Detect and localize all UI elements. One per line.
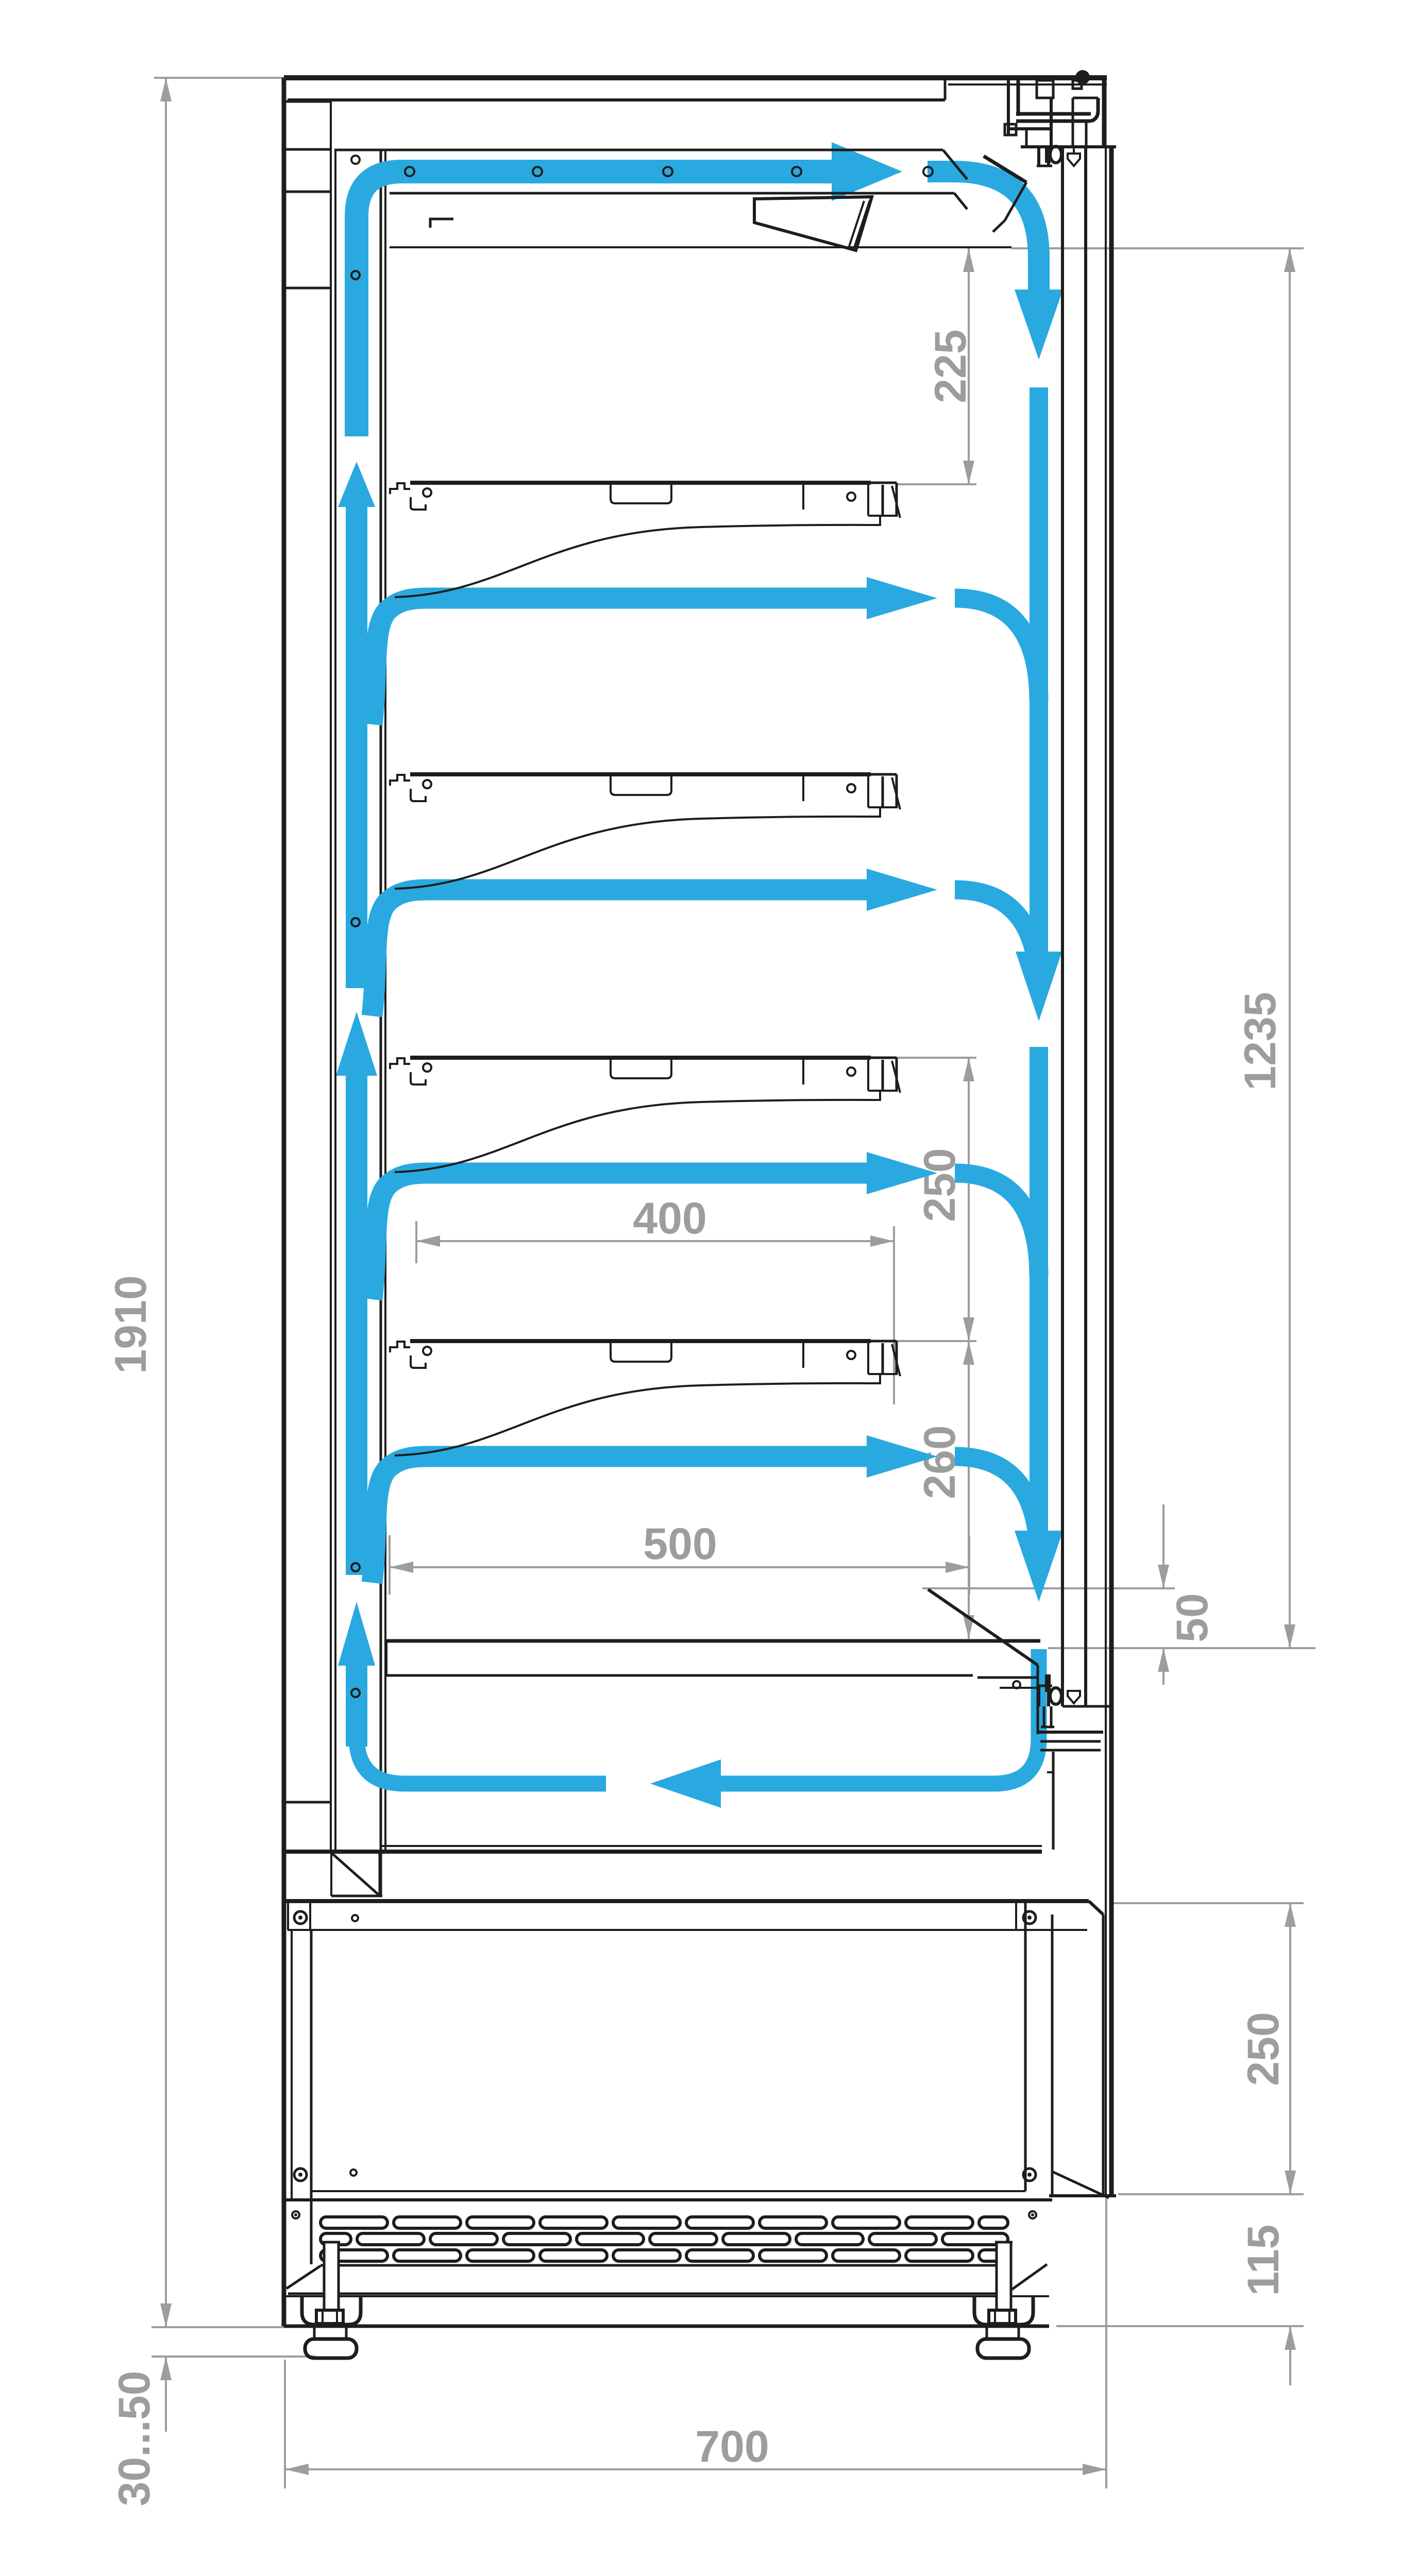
svg-text:50: 50	[1168, 1593, 1217, 1642]
svg-text:1235: 1235	[1236, 992, 1285, 1090]
svg-text:400: 400	[633, 1194, 707, 1243]
svg-text:250: 250	[1239, 2012, 1288, 2086]
svg-text:250: 250	[915, 1148, 965, 1222]
svg-text:700: 700	[695, 2422, 769, 2471]
svg-text:115: 115	[1239, 2225, 1288, 2296]
svg-text:500: 500	[643, 1519, 717, 1569]
svg-text:1910: 1910	[106, 1275, 156, 1374]
svg-text:225: 225	[926, 329, 975, 403]
svg-text:30...50: 30...50	[110, 2371, 159, 2506]
